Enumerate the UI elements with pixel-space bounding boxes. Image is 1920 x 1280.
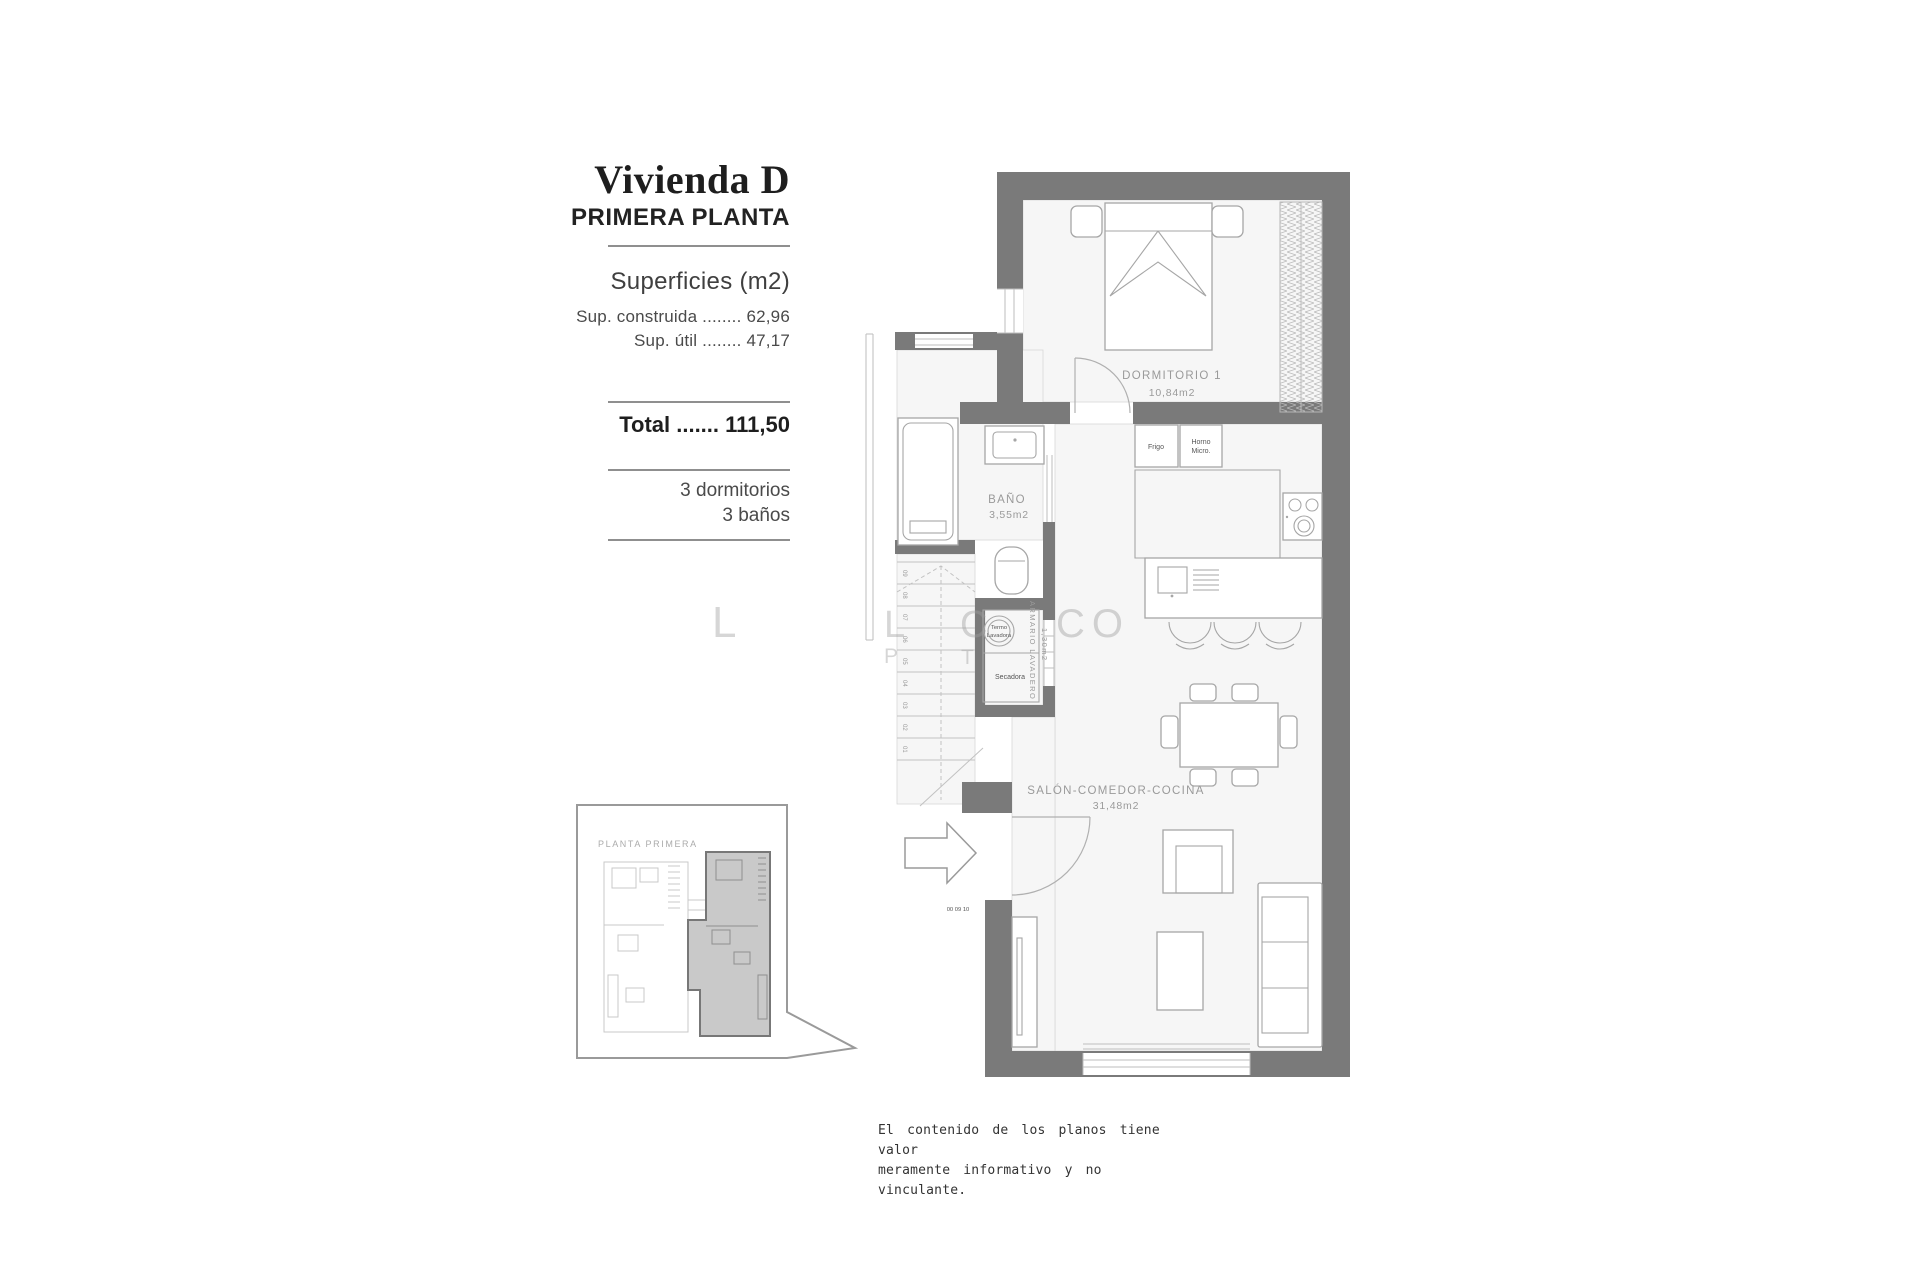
divider bbox=[608, 401, 790, 403]
bed bbox=[1105, 203, 1212, 350]
floor-plan: 09 08 07 06 05 04 03 02 01 00 09 10 bbox=[850, 150, 1370, 1100]
room-label-bano: BAÑO bbox=[988, 493, 1026, 506]
oven-label-1: Horno bbox=[1191, 439, 1210, 446]
hob bbox=[1283, 493, 1322, 540]
disclaimer-line-1: El contenido de los planos tiene valor bbox=[878, 1121, 1178, 1161]
kitchen-island bbox=[1145, 558, 1322, 618]
stair-step-number: 07 bbox=[901, 614, 907, 621]
washer-label-2: Lavadora bbox=[987, 633, 1012, 639]
wardrobe bbox=[1280, 202, 1322, 412]
nightstand-right bbox=[1212, 206, 1243, 237]
room-area-bano: 3,55m2 bbox=[989, 509, 1029, 521]
bathroom-window bbox=[915, 334, 973, 348]
nightstand-left bbox=[1071, 206, 1102, 237]
oven-microwave bbox=[1180, 425, 1222, 467]
surface-row-util: Sup. útil ........ 47,17 bbox=[400, 331, 790, 351]
info-panel: Vivienda D PRIMERA PLANTA Superficies (m… bbox=[400, 160, 790, 541]
room-label-salon: SALÓN-COMEDOR-COCINA bbox=[1027, 784, 1204, 797]
room-label-armario: ARMARIO LAVADERO bbox=[1028, 601, 1037, 700]
bedroom-window bbox=[997, 289, 1023, 333]
stair-step-number: 08 bbox=[901, 592, 907, 599]
room-label-dormitorio: DORMITORIO 1 bbox=[1122, 370, 1222, 382]
page-title: Vivienda D bbox=[400, 160, 790, 200]
dryer-label: Secadora bbox=[995, 674, 1025, 681]
oven-label-2: Micro. bbox=[1191, 448, 1210, 455]
stair-step-number: 06 bbox=[901, 636, 907, 643]
feature-bedrooms: 3 dormitorios bbox=[400, 480, 790, 502]
divider bbox=[608, 245, 790, 247]
overview-label: PLANTA PRIMERA bbox=[598, 839, 698, 849]
shower bbox=[898, 418, 958, 545]
total-row: Total ....... 111,50 bbox=[400, 412, 790, 438]
stair-step-number: 09 bbox=[901, 570, 907, 577]
armchair bbox=[1163, 830, 1233, 893]
stair-step-number: 01 bbox=[901, 746, 907, 753]
disclaimer-line-2: meramente informativo y no vinculante. bbox=[878, 1161, 1178, 1201]
divider bbox=[608, 539, 790, 541]
disclaimer: El contenido de los planos tiene valor m… bbox=[878, 1121, 1178, 1202]
feature-bathrooms: 3 baños bbox=[400, 505, 790, 527]
divider bbox=[608, 469, 790, 471]
stair-step-number: 05 bbox=[901, 658, 907, 665]
room-area-salon: 31,48m2 bbox=[1093, 800, 1139, 812]
floor-subtitle: PRIMERA PLANTA bbox=[400, 204, 790, 232]
tv-unit bbox=[1012, 917, 1037, 1047]
room-area-armario: 1,30m2 bbox=[1040, 628, 1049, 661]
stair-bottom-marks: 00 09 10 bbox=[947, 907, 970, 913]
overview-callout: PLANTA PRIMERA bbox=[560, 795, 870, 1070]
surface-row-construida: Sup. construida ........ 62,96 bbox=[400, 307, 790, 327]
stair-step-number: 04 bbox=[901, 680, 907, 687]
washbasin bbox=[985, 426, 1044, 464]
stair-step-number: 02 bbox=[901, 724, 907, 731]
sofa bbox=[1258, 883, 1322, 1047]
living-room-window bbox=[1083, 1044, 1250, 1075]
stair-step-number: 03 bbox=[901, 702, 907, 709]
toilet bbox=[995, 547, 1028, 594]
washer-label-1: Termo bbox=[991, 625, 1007, 631]
surfaces-heading: Superficies (m2) bbox=[400, 268, 790, 296]
entry-arrow-icon bbox=[905, 823, 976, 883]
coffee-table bbox=[1157, 932, 1203, 1010]
fridge-label: Frigo bbox=[1148, 444, 1164, 451]
room-area-dormitorio: 10,84m2 bbox=[1149, 387, 1195, 399]
watermark-fragment: L bbox=[712, 598, 736, 648]
